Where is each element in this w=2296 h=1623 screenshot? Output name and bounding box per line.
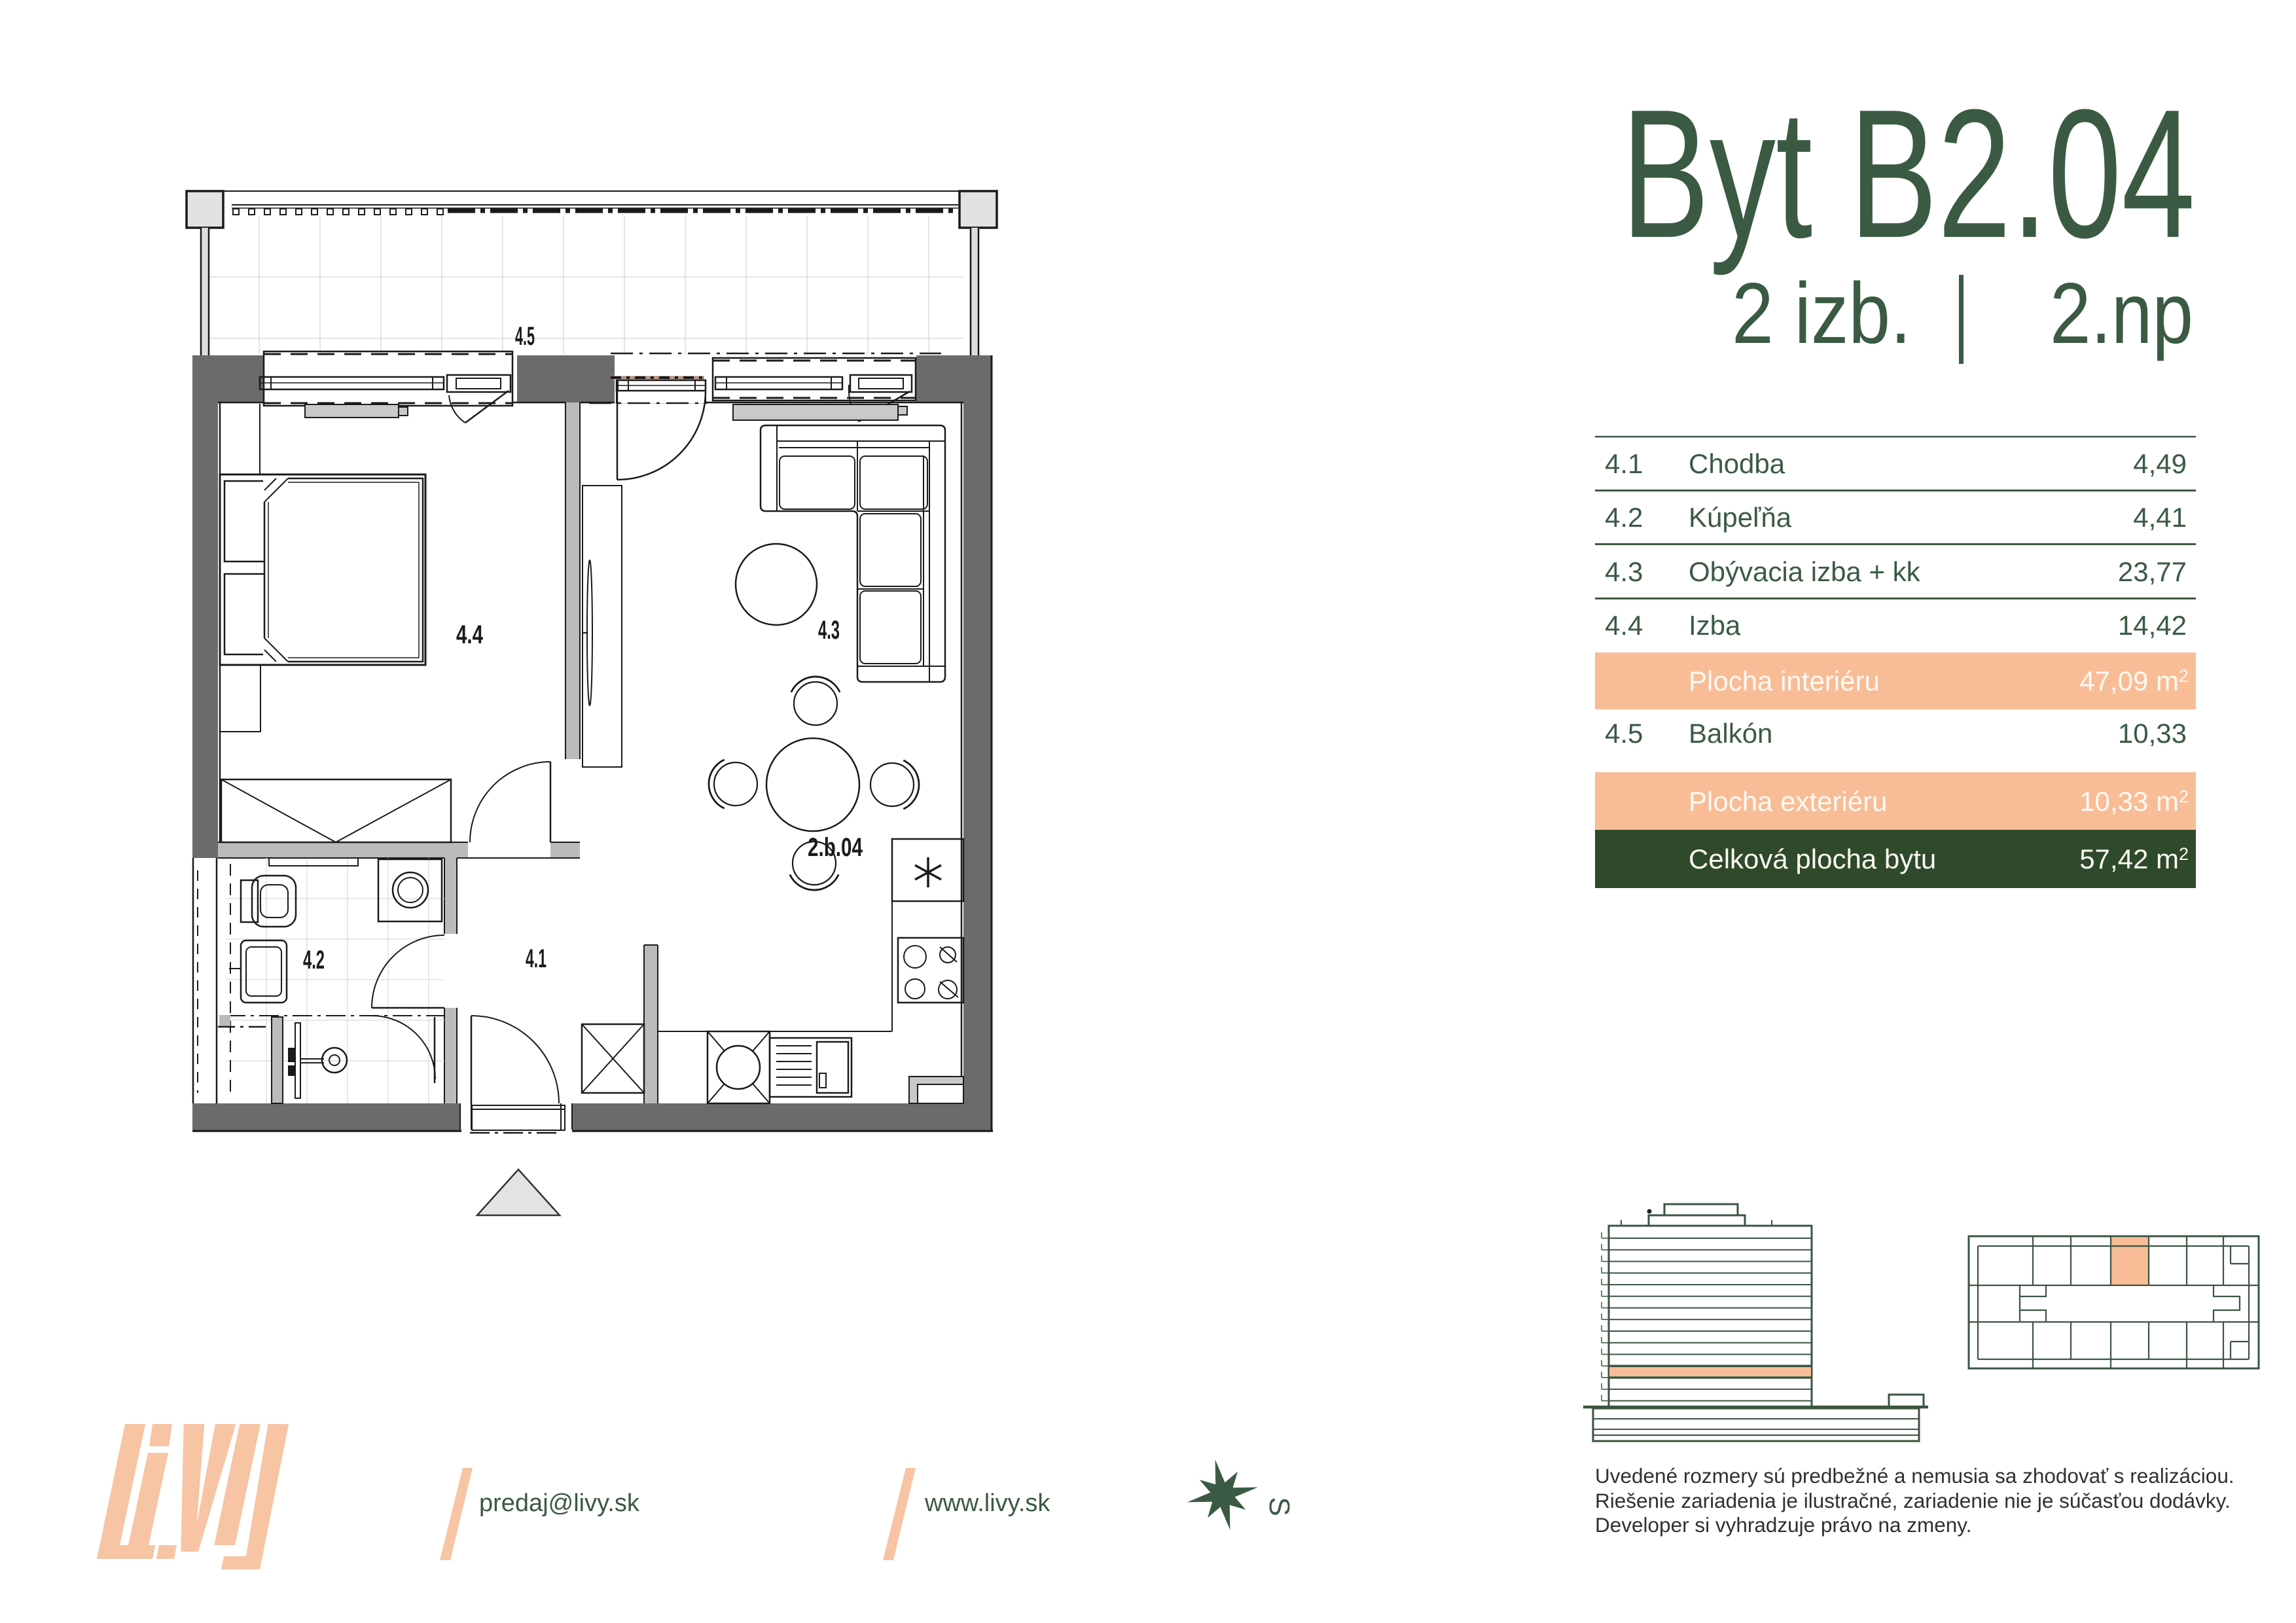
svg-text:2.b.04: 2.b.04 [808,833,863,862]
svg-text:Plocha interiéru: Plocha interiéru [1689,666,1880,696]
svg-text:Kúpeľňa: Kúpeľňa [1689,502,1792,533]
svg-text:predaj@livy.sk: predaj@livy.sk [479,1489,640,1517]
svg-text:4.5: 4.5 [515,322,535,351]
svg-text:4.3: 4.3 [1605,556,1643,587]
svg-text:4.2: 4.2 [1605,502,1643,533]
svg-text:Byt B2.04: Byt B2.04 [1621,72,2195,277]
svg-text:Uvedené rozmery sú predbežné a: Uvedené rozmery sú predbežné a nemusia s… [1595,1464,2234,1488]
svg-text:Plocha exteriéru: Plocha exteriéru [1689,786,1888,817]
svg-text:4,41: 4,41 [2133,502,2187,533]
svg-text:4.4: 4.4 [1605,610,1643,641]
svg-text:Obývacia izba + kk: Obývacia izba + kk [1689,556,1921,587]
svg-text:2.np: 2.np [2050,265,2193,361]
svg-text:10,33 m2: 10,33 m2 [2079,786,2189,817]
svg-text:14,42: 14,42 [2118,610,2187,641]
svg-text:Riešenie zariadenia je ilustra: Riešenie zariadenia je ilustračné, zaria… [1595,1489,2231,1512]
svg-text:Balkón: Balkón [1689,718,1772,749]
svg-text:Celková plocha bytu: Celková plocha bytu [1689,844,1936,874]
svg-text:57,42 m2: 57,42 m2 [2079,844,2189,874]
svg-text:2 izb.: 2 izb. [1732,265,1911,361]
svg-text:23,77: 23,77 [2118,556,2187,587]
svg-text:4.2: 4.2 [303,946,325,974]
svg-text:Chodba: Chodba [1689,448,1785,479]
svg-text:4.3: 4.3 [818,616,840,645]
svg-text:4.1: 4.1 [1605,448,1643,479]
svg-text:4,49: 4,49 [2133,448,2187,479]
svg-text:4.4: 4.4 [456,620,484,649]
svg-text:10,33: 10,33 [2118,718,2187,749]
svg-text:S: S [1263,1497,1295,1516]
svg-text:4.1: 4.1 [526,944,547,973]
svg-text:4.5: 4.5 [1605,718,1643,749]
svg-text:www.livy.sk: www.livy.sk [924,1489,1050,1517]
svg-text:Developer si vyhradzuje právo: Developer si vyhradzuje právo na zmeny. [1595,1513,1971,1537]
svg-text:Izba: Izba [1689,610,1741,641]
svg-text:47,09 m2: 47,09 m2 [2079,666,2189,696]
